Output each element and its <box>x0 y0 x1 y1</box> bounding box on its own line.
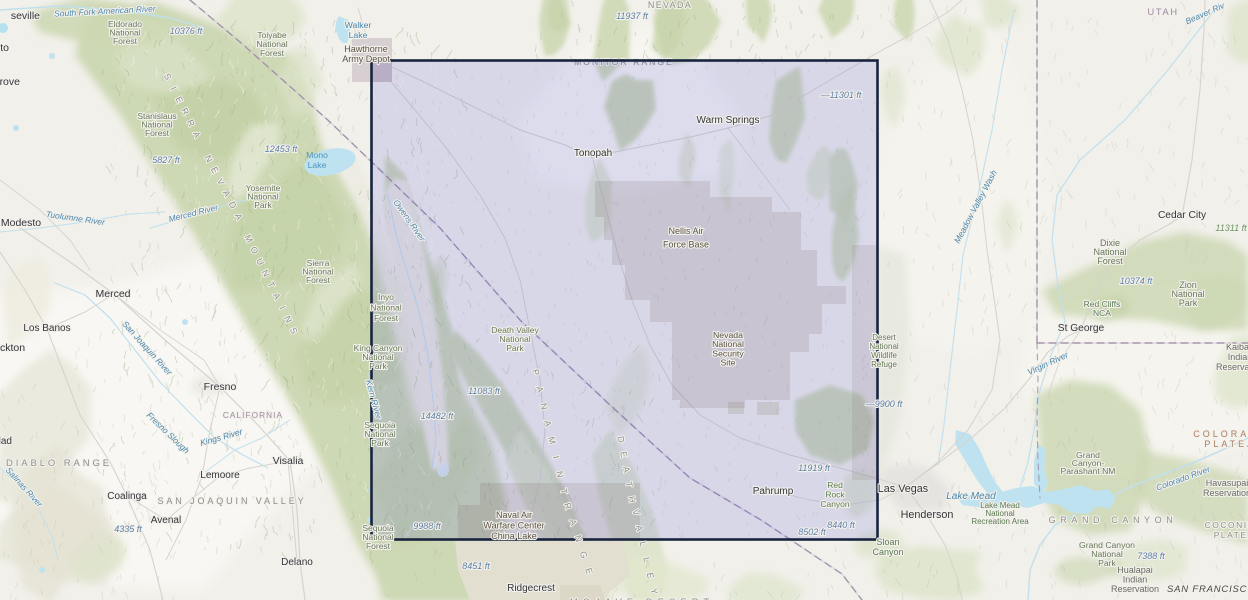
svg-text:Tonopah: Tonopah <box>574 148 612 159</box>
svg-text:10374 ft: 10374 ft <box>1120 276 1153 286</box>
svg-text:Pahrump: Pahrump <box>753 486 794 497</box>
svg-text:8451 ft: 8451 ft <box>462 561 490 571</box>
svg-text:National: National <box>370 303 401 313</box>
svg-text:—11301 ft: —11301 ft <box>820 90 862 100</box>
svg-text:Lake: Lake <box>349 30 368 40</box>
svg-text:Indian: Indian <box>1228 352 1248 362</box>
svg-text:11919 ft: 11919 ft <box>798 463 830 473</box>
svg-text:Reservation: Reservation <box>1203 488 1248 498</box>
svg-text:Los Banos: Los Banos <box>23 323 70 334</box>
svg-text:GRAND CANYON: GRAND CANYON <box>1049 515 1178 525</box>
svg-text:Henderson: Henderson <box>901 509 954 521</box>
svg-text:11311 ft: 11311 ft <box>1215 223 1247 233</box>
svg-text:COCONINO: COCONINO <box>1205 520 1248 530</box>
svg-text:Ridgecrest: Ridgecrest <box>507 583 555 594</box>
svg-text:Forest: Forest <box>1097 256 1123 266</box>
svg-text:lad: lad <box>0 436 12 447</box>
svg-text:Reservation: Reservation <box>1216 362 1248 372</box>
svg-text:11083 ft: 11083 ft <box>468 386 500 396</box>
svg-text:St George: St George <box>1058 323 1105 334</box>
svg-text:to: to <box>0 42 9 54</box>
svg-text:Fresno: Fresno <box>204 381 237 393</box>
svg-text:10376 ft: 10376 ft <box>170 26 203 36</box>
svg-text:Canyon: Canyon <box>872 547 903 557</box>
svg-text:Coalinga: Coalinga <box>107 491 147 502</box>
svg-text:Hawthorne: Hawthorne <box>344 44 388 54</box>
svg-text:Park: Park <box>506 343 524 353</box>
svg-text:NCA: NCA <box>1093 308 1111 318</box>
svg-text:Park: Park <box>371 438 389 448</box>
svg-text:Army Depot: Army Depot <box>342 54 390 64</box>
svg-text:Cedar City: Cedar City <box>1158 210 1207 221</box>
svg-text:Kaibab: Kaibab <box>1226 342 1248 352</box>
svg-text:Indian: Indian <box>1123 575 1148 585</box>
svg-text:Warm Springs: Warm Springs <box>697 115 760 126</box>
svg-text:Forest: Forest <box>113 36 138 46</box>
svg-text:Park: Park <box>369 361 387 371</box>
svg-text:DIABLO RANGE: DIABLO RANGE <box>6 458 112 469</box>
svg-text:Avenal: Avenal <box>151 515 181 526</box>
svg-text:Rock: Rock <box>825 490 845 500</box>
svg-text:Walker: Walker <box>345 20 372 30</box>
svg-text:Warfare Center: Warfare Center <box>483 521 544 531</box>
svg-text:Park: Park <box>254 200 272 210</box>
svg-text:Reservation: Reservation <box>1111 584 1159 594</box>
svg-text:Forest: Forest <box>374 313 399 323</box>
svg-text:COLORADO: COLORADO <box>1193 429 1248 439</box>
svg-text:Parashant NM: Parashant NM <box>1061 466 1116 476</box>
svg-text:Forest: Forest <box>145 128 170 138</box>
svg-text:Sloan: Sloan <box>876 537 899 547</box>
svg-text:Lake: Lake <box>308 160 327 170</box>
svg-text:4335 ft: 4335 ft <box>114 524 142 534</box>
svg-text:rove: rove <box>0 76 20 88</box>
svg-text:14482 ft: 14482 ft <box>421 411 454 421</box>
svg-text:National: National <box>869 342 899 351</box>
svg-text:Inyo: Inyo <box>378 292 394 302</box>
svg-text:Merced: Merced <box>95 288 130 300</box>
svg-text:Havasupai: Havasupai <box>1206 478 1248 488</box>
svg-text:Canyon: Canyon <box>820 499 850 509</box>
svg-text:Delano: Delano <box>281 557 313 568</box>
svg-text:SAN FRANCISCO PLAT: SAN FRANCISCO PLAT <box>1167 584 1248 595</box>
svg-text:PLATEAU: PLATEAU <box>1214 530 1248 540</box>
svg-text:Site: Site <box>721 358 736 368</box>
svg-text:11937 ft: 11937 ft <box>616 11 648 21</box>
svg-text:12453 ft: 12453 ft <box>265 144 298 154</box>
svg-text:PLATEAU: PLATEAU <box>1204 439 1248 449</box>
svg-text:ckton: ckton <box>0 342 25 354</box>
svg-text:Lemoore: Lemoore <box>200 470 240 481</box>
svg-text:Forest: Forest <box>260 48 285 58</box>
svg-text:—9900 ft: —9900 ft <box>865 399 903 409</box>
svg-text:SAN JOAQUIN VALLEY: SAN JOAQUIN VALLEY <box>157 496 306 506</box>
svg-text:5827 ft: 5827 ft <box>152 155 180 165</box>
svg-text:Recreation Area: Recreation Area <box>971 517 1029 526</box>
svg-text:Naval Air: Naval Air <box>496 510 532 520</box>
svg-text:UTAH: UTAH <box>1147 7 1178 18</box>
svg-text:Forest: Forest <box>306 275 331 285</box>
svg-text:Las Vegas: Las Vegas <box>878 483 929 495</box>
svg-text:Forest: Forest <box>366 541 391 551</box>
svg-text:Park: Park <box>1179 298 1198 308</box>
svg-text:Mono: Mono <box>306 150 328 160</box>
svg-text:Hualapai: Hualapai <box>1117 565 1153 575</box>
svg-text:Red: Red <box>827 480 843 490</box>
svg-text:8502 ft: 8502 ft <box>798 527 826 537</box>
svg-text:7388 ft: 7388 ft <box>1137 551 1165 561</box>
svg-text:Refuge: Refuge <box>871 360 897 369</box>
svg-text:Lake Mead: Lake Mead <box>946 491 996 502</box>
svg-text:9988 ft: 9988 ft <box>413 521 441 531</box>
svg-text:Force Base: Force Base <box>663 240 709 250</box>
svg-text:CALIFORNIA: CALIFORNIA <box>223 411 283 420</box>
svg-text:Modesto: Modesto <box>1 217 41 229</box>
svg-text:seville: seville <box>11 10 40 22</box>
svg-text:NEVADA: NEVADA <box>648 0 692 10</box>
svg-text:Nellis Air: Nellis Air <box>668 226 703 236</box>
svg-text:Visalia: Visalia <box>273 455 304 467</box>
svg-text:Desert: Desert <box>872 333 896 342</box>
svg-text:China Lake: China Lake <box>491 531 537 541</box>
svg-text:Wildlife: Wildlife <box>871 351 897 360</box>
svg-text:8440 ft: 8440 ft <box>827 520 855 530</box>
svg-text:Park: Park <box>1098 558 1116 568</box>
